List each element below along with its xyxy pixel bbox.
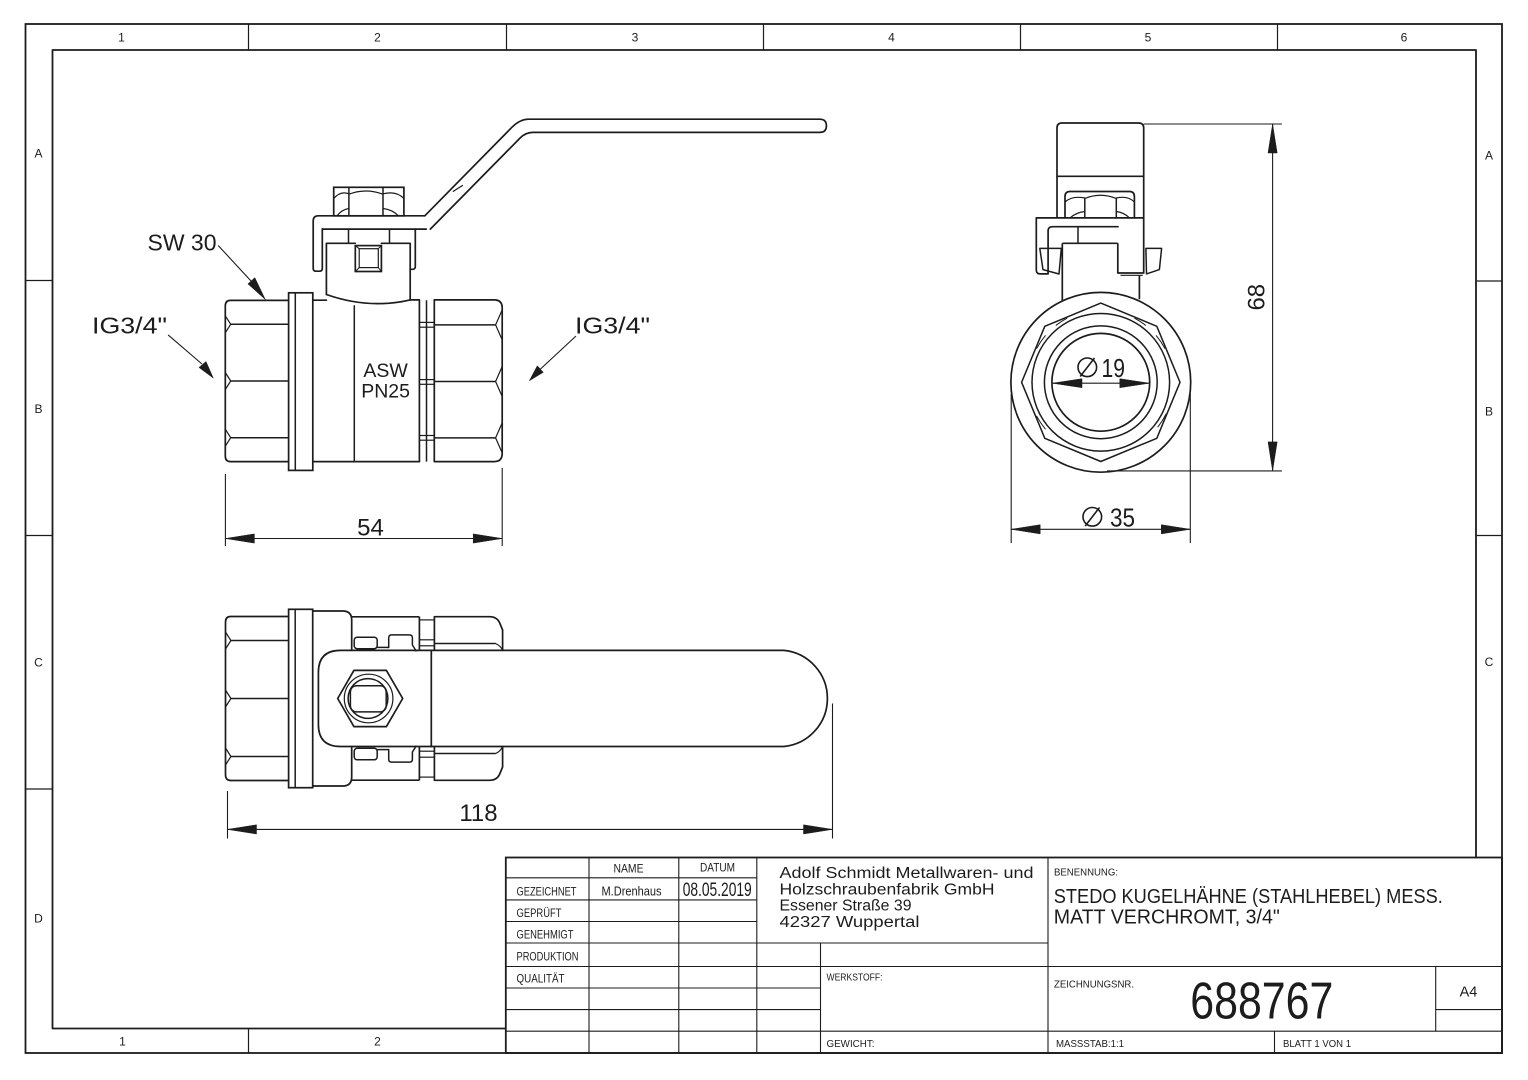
svg-text:PRODUKTION: PRODUKTION xyxy=(517,952,579,964)
svg-text:Adolf Schmidt Metallwaren- und: Adolf Schmidt Metallwaren- und xyxy=(780,865,1034,882)
svg-text:NAME: NAME xyxy=(614,864,644,876)
svg-text:C: C xyxy=(34,656,43,670)
svg-text:SW 30: SW 30 xyxy=(148,230,217,256)
svg-text:68: 68 xyxy=(1244,284,1271,311)
svg-text:C: C xyxy=(1485,655,1494,669)
svg-text:GENEHMIGT: GENEHMIGT xyxy=(517,930,574,942)
svg-text:ZEICHNUNGSNR.: ZEICHNUNGSNR. xyxy=(1054,979,1134,991)
svg-text:A: A xyxy=(34,147,42,161)
svg-text:D: D xyxy=(34,912,43,926)
svg-text:DATUM: DATUM xyxy=(700,863,735,875)
svg-text:Essener Straße 39: Essener Straße 39 xyxy=(780,898,912,915)
svg-text:1: 1 xyxy=(118,31,125,45)
svg-text:GEWICHT:: GEWICHT: xyxy=(827,1038,875,1050)
svg-text:B: B xyxy=(34,402,42,416)
svg-text:IG3/4": IG3/4" xyxy=(575,313,650,339)
svg-text:IG3/4": IG3/4" xyxy=(92,313,167,339)
svg-text:35: 35 xyxy=(1110,503,1135,533)
svg-text:GEPRÜFT: GEPRÜFT xyxy=(517,908,562,920)
svg-text:3: 3 xyxy=(632,31,639,45)
svg-text:1: 1 xyxy=(119,1035,126,1049)
svg-text:A4: A4 xyxy=(1460,985,1478,1001)
svg-text:PN25: PN25 xyxy=(361,381,410,403)
svg-text:2: 2 xyxy=(374,31,381,45)
svg-text:08.05.2019: 08.05.2019 xyxy=(683,880,752,901)
svg-text:BENENNUNG:: BENENNUNG: xyxy=(1054,867,1118,879)
svg-text:118: 118 xyxy=(459,800,497,827)
svg-text:B: B xyxy=(1485,405,1493,419)
svg-text:M.Drenhaus: M.Drenhaus xyxy=(602,885,662,899)
svg-text:BLATT 1 VON 1: BLATT 1 VON 1 xyxy=(1283,1038,1351,1050)
svg-text:GEZEICHNET: GEZEICHNET xyxy=(517,887,577,899)
svg-text:QUALITÄT: QUALITÄT xyxy=(517,974,565,986)
svg-text:2: 2 xyxy=(374,1035,381,1049)
svg-text:MATT VERCHROMT, 3/4": MATT VERCHROMT, 3/4" xyxy=(1054,907,1280,929)
svg-text:54: 54 xyxy=(357,515,384,542)
svg-text:19: 19 xyxy=(1102,353,1126,383)
svg-text:4: 4 xyxy=(888,31,895,45)
svg-text:ASW: ASW xyxy=(363,360,408,382)
svg-text:5: 5 xyxy=(1145,31,1152,45)
svg-text:STEDO KUGELHÄHNE (STAHLHEBEL): STEDO KUGELHÄHNE (STAHLHEBEL) MESS. xyxy=(1054,886,1443,908)
svg-text:688767: 688767 xyxy=(1190,973,1333,1031)
svg-text:6: 6 xyxy=(1401,31,1408,45)
svg-text:Holzschraubenfabrik GmbH: Holzschraubenfabrik GmbH xyxy=(780,881,995,898)
svg-text:42327 Wuppertal: 42327 Wuppertal xyxy=(780,914,920,931)
svg-text:A: A xyxy=(1485,149,1493,163)
svg-text:MASSSTAB:1:1: MASSSTAB:1:1 xyxy=(1056,1038,1124,1050)
svg-text:WERKSTOFF:: WERKSTOFF: xyxy=(827,972,883,984)
